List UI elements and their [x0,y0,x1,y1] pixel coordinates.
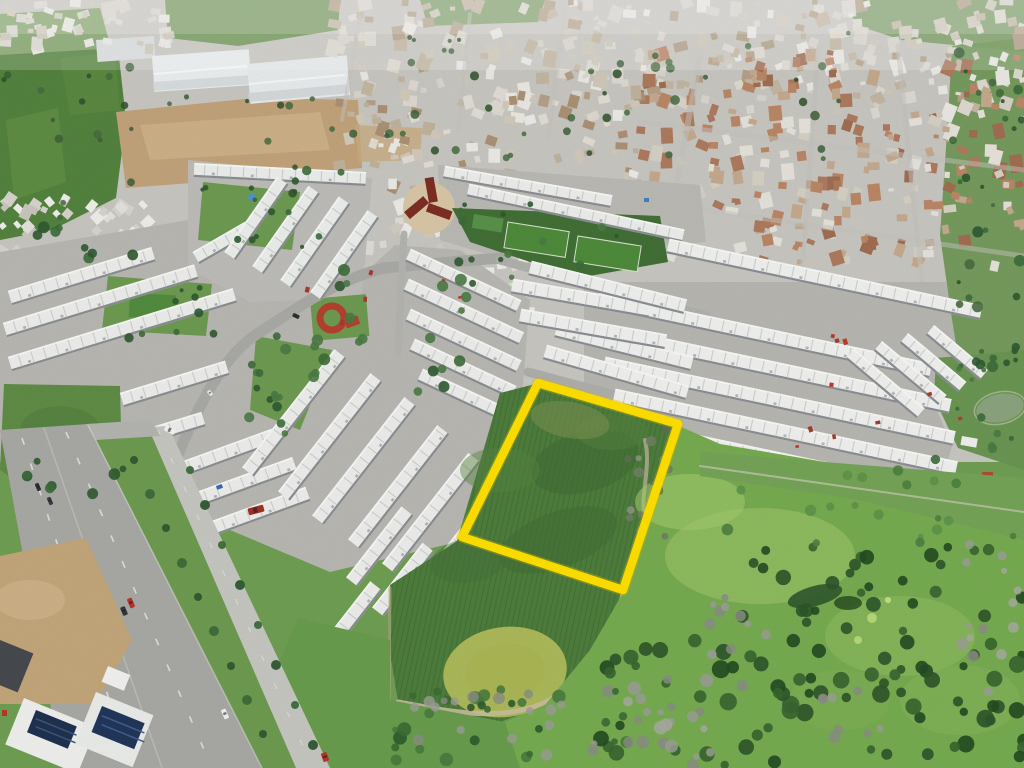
screenshot-stage [0,0,1024,768]
paint-layer [0,0,1024,768]
photo-grain [0,0,1024,768]
aerial-photograph [0,0,1024,768]
